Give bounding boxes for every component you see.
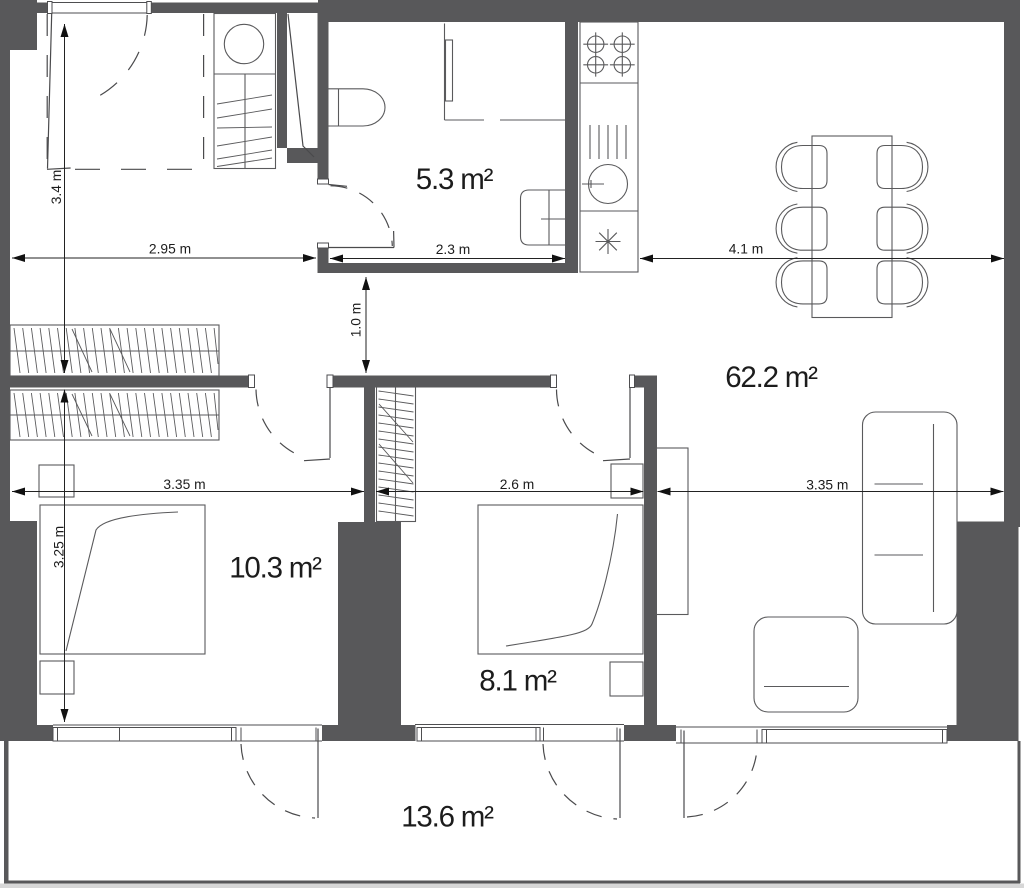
svg-text:13.6 m²: 13.6 m² xyxy=(401,801,494,834)
svg-text:4.1 m: 4.1 m xyxy=(729,242,764,257)
svg-text:3.25 m: 3.25 m xyxy=(52,526,67,568)
svg-text:5.3 m²: 5.3 m² xyxy=(416,163,494,196)
svg-text:3.4 m: 3.4 m xyxy=(49,170,64,205)
svg-text:2.3 m: 2.3 m xyxy=(436,242,471,257)
svg-text:2.6 m: 2.6 m xyxy=(500,477,535,492)
svg-text:62.2 m²: 62.2 m² xyxy=(725,361,818,394)
svg-text:8.1 m²: 8.1 m² xyxy=(479,665,557,698)
svg-text:3.35 m: 3.35 m xyxy=(163,477,205,492)
svg-text:3.35 m: 3.35 m xyxy=(806,478,848,493)
svg-text:10.3 m²: 10.3 m² xyxy=(229,552,322,585)
svg-text:2.95 m: 2.95 m xyxy=(149,242,191,257)
svg-text:1.0 m: 1.0 m xyxy=(349,303,364,338)
